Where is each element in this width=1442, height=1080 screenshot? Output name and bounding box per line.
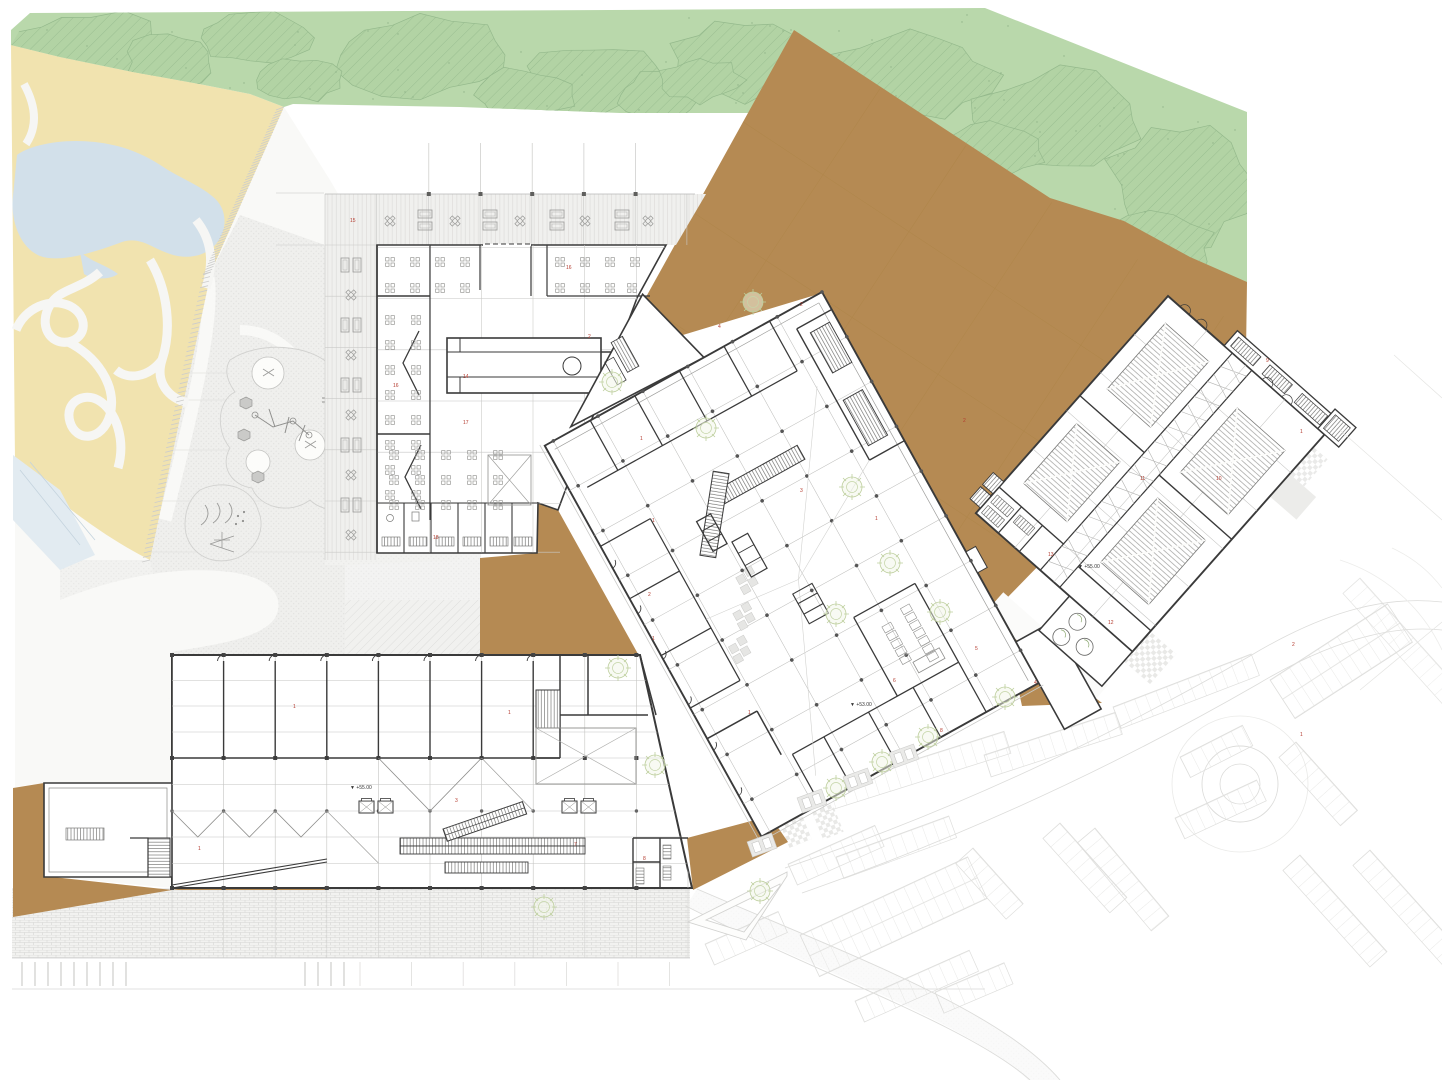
svg-text:2: 2 bbox=[963, 418, 966, 424]
svg-text:1: 1 bbox=[293, 704, 296, 710]
svg-text:14: 14 bbox=[463, 374, 469, 380]
svg-text:12: 12 bbox=[1108, 620, 1114, 626]
svg-text:1: 1 bbox=[875, 516, 878, 522]
svg-text:4: 4 bbox=[1034, 680, 1037, 686]
svg-text:1: 1 bbox=[198, 846, 201, 852]
svg-text:18: 18 bbox=[433, 535, 439, 541]
svg-text:8: 8 bbox=[940, 728, 943, 734]
svg-text:11: 11 bbox=[1140, 476, 1145, 482]
svg-text:1: 1 bbox=[652, 518, 655, 524]
svg-text:6: 6 bbox=[893, 678, 896, 684]
svg-text:9: 9 bbox=[1266, 358, 1269, 364]
svg-text:2: 2 bbox=[1292, 642, 1295, 648]
svg-text:8: 8 bbox=[643, 856, 646, 862]
svg-text:10: 10 bbox=[1216, 476, 1222, 482]
svg-text:2: 2 bbox=[648, 592, 651, 598]
svg-text:1: 1 bbox=[748, 710, 751, 716]
svg-text:▼ +53.00: ▼ +53.00 bbox=[850, 702, 872, 708]
svg-text:17: 17 bbox=[463, 420, 469, 426]
svg-text:2: 2 bbox=[588, 334, 591, 340]
svg-text:4: 4 bbox=[718, 324, 721, 330]
svg-text:▼ +55.00: ▼ +55.00 bbox=[1078, 564, 1100, 570]
svg-text:7: 7 bbox=[574, 842, 577, 848]
svg-text:2: 2 bbox=[800, 302, 803, 308]
svg-text:3: 3 bbox=[455, 798, 458, 804]
svg-text:1: 1 bbox=[1300, 732, 1303, 738]
svg-text:3: 3 bbox=[800, 488, 803, 494]
svg-text:16: 16 bbox=[393, 383, 399, 389]
svg-text:▼ +55.00: ▼ +55.00 bbox=[350, 785, 372, 791]
svg-text:13: 13 bbox=[1048, 552, 1054, 558]
svg-text:1: 1 bbox=[1300, 429, 1303, 435]
svg-text:1: 1 bbox=[508, 710, 511, 716]
svg-text:1: 1 bbox=[652, 636, 655, 642]
svg-text:15: 15 bbox=[350, 218, 356, 224]
svg-text:16: 16 bbox=[566, 265, 572, 271]
svg-text:5: 5 bbox=[975, 646, 978, 652]
svg-text:1: 1 bbox=[640, 436, 643, 442]
